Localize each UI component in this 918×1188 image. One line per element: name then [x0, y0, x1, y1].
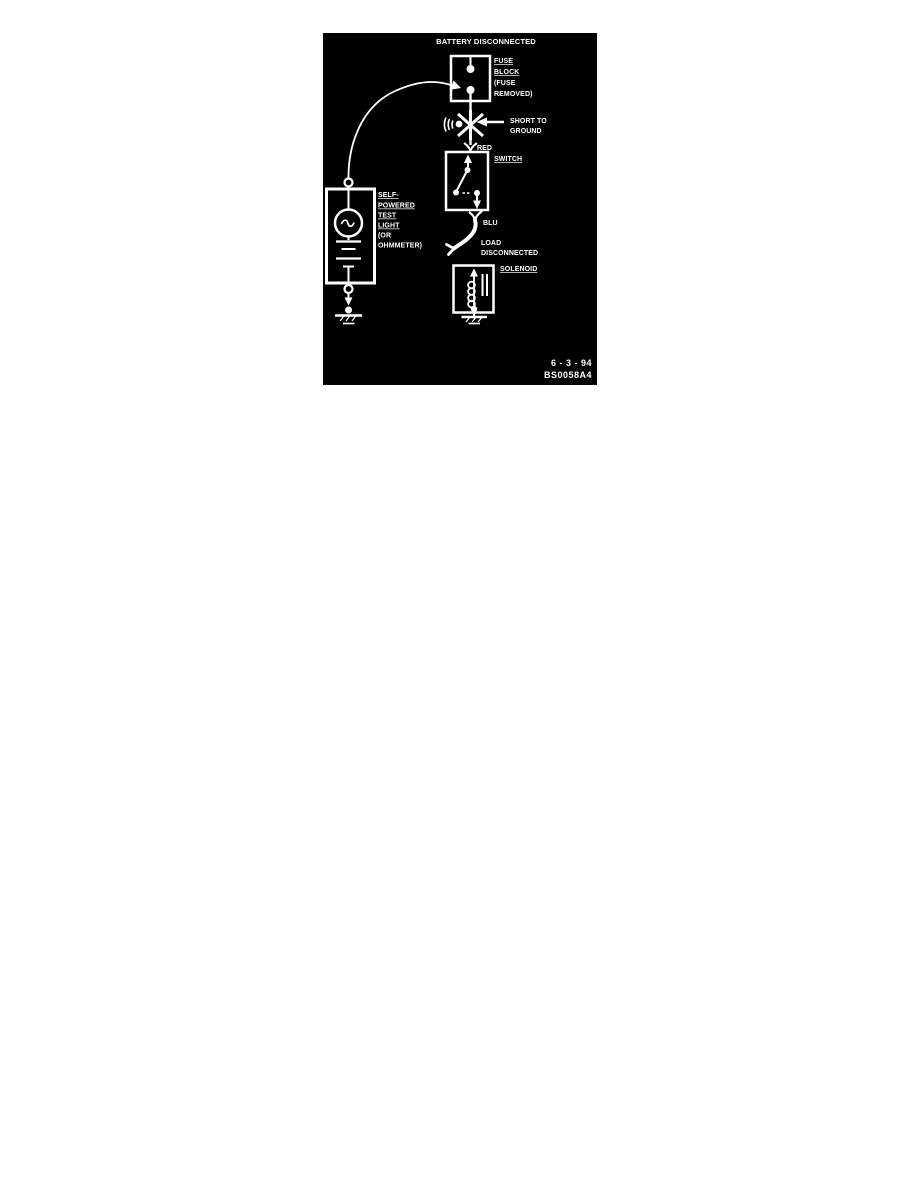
ground-icon: [462, 313, 488, 324]
test-light-label: SELF- POWERED TEST LIGHT (OR OHMMETER): [378, 192, 422, 250]
load-wire: [447, 220, 476, 255]
figure-title: BATTERY DISCONNECTED: [436, 37, 536, 46]
circuit-test-diagram-figure: BATTERY DISCONNECTED FUSE BLOCK (FUSE RE…: [323, 33, 597, 385]
fuse-block-label-line: FUSE: [494, 58, 513, 65]
filament-icon: [342, 220, 355, 226]
test-light-symbol: [327, 179, 375, 284]
fuse-block-label-line: REMOVED): [494, 91, 533, 98]
battery-icon: [336, 242, 361, 267]
connector-ring-icon: [345, 285, 353, 293]
fuse-block-label: FUSE BLOCK (FUSE REMOVED): [494, 58, 533, 98]
test-light-label-line: POWERED: [378, 203, 415, 210]
test-light-label-line: LIGHT: [378, 223, 400, 230]
switch-symbol: [446, 152, 488, 210]
test-lead-wire: [348, 81, 461, 180]
short-to-ground-label: SHORT TO GROUND: [510, 118, 547, 135]
ground-icon: [335, 316, 362, 324]
switch-label: SWITCH: [494, 156, 522, 163]
load-disconnected-label-line: DISCONNECTED: [481, 250, 538, 257]
test-light-label-line: OHMMETER): [378, 243, 422, 250]
connector-ring-icon: [345, 179, 353, 187]
connector-fork-icon: [447, 245, 455, 255]
short-to-ground-label-line: GROUND: [510, 128, 542, 135]
load-disconnected-label: LOAD DISCONNECTED: [481, 240, 538, 257]
short-to-ground-arrow: [477, 118, 505, 127]
date-stamp: 6 - 3 - 94: [551, 358, 592, 368]
load-disconnected-label-line: LOAD: [481, 240, 501, 247]
short-to-ground-spark-icon: [444, 110, 483, 140]
test-light-label-line: (OR: [378, 233, 391, 240]
test-light-ground: [335, 285, 362, 324]
fuse-block-label-line: (FUSE: [494, 80, 516, 87]
short-to-ground-label-line: SHORT TO: [510, 118, 547, 125]
solenoid-symbol: [454, 266, 494, 313]
test-light-label-line: TEST: [378, 213, 397, 220]
fuse-block-label-line: BLOCK: [494, 69, 519, 76]
solenoid-label: SOLENOID: [500, 266, 537, 273]
figure-code: BS0058A4: [544, 370, 592, 380]
down-arrowhead-icon: [345, 298, 353, 306]
test-light-label-line: SELF-: [378, 192, 399, 199]
blu-wire-label: BLU: [483, 220, 498, 227]
